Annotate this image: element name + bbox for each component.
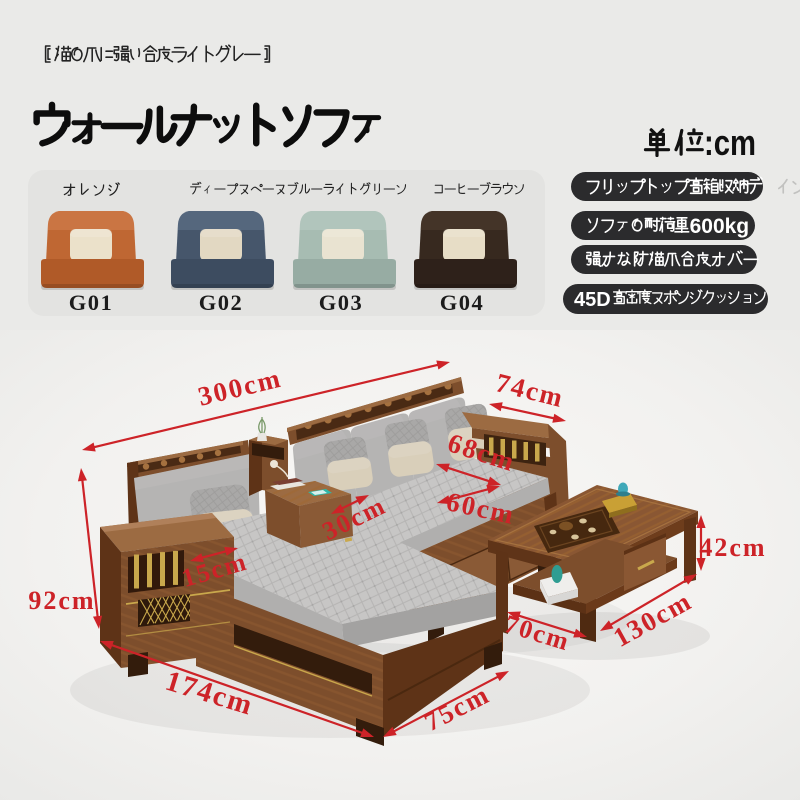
svg-text:G04: G04 (440, 290, 485, 315)
svg-text:G03: G03 (319, 290, 364, 315)
svg-text:600kg: 600kg (690, 215, 750, 238)
svg-text:92cm: 92cm (28, 586, 95, 615)
svg-text:45D: 45D (574, 289, 611, 311)
svg-text::cm: :cm (704, 122, 756, 163)
svg-text:G01: G01 (69, 290, 114, 315)
svg-text:G02: G02 (199, 290, 244, 315)
svg-text:42cm: 42cm (699, 533, 766, 562)
